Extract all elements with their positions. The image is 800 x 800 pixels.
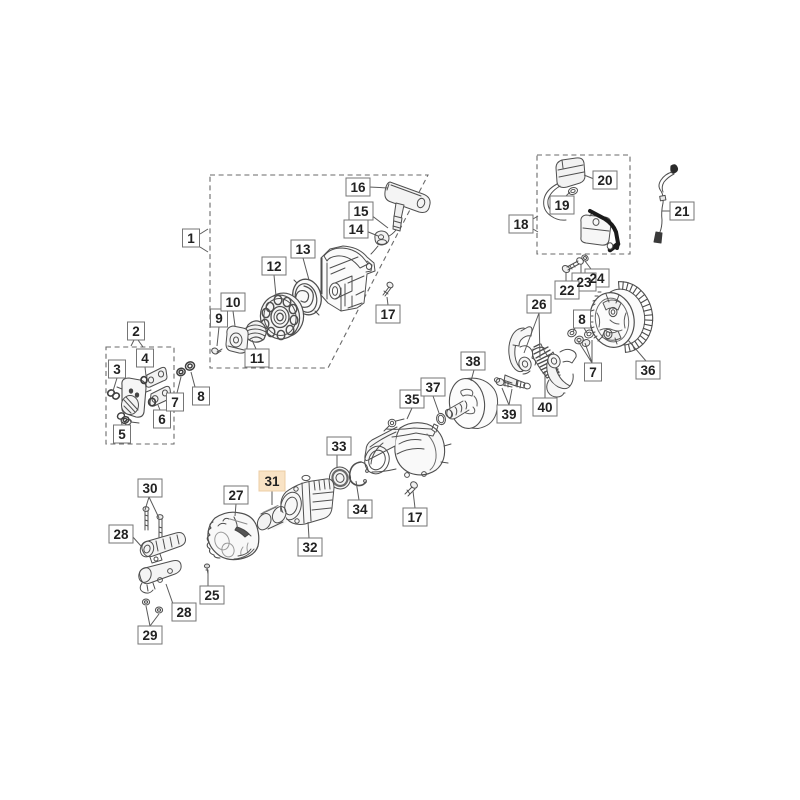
svg-text:18: 18: [513, 217, 529, 232]
svg-text:8: 8: [578, 312, 586, 327]
svg-text:24: 24: [589, 271, 605, 286]
svg-text:20: 20: [597, 173, 612, 188]
svg-text:1: 1: [187, 231, 195, 246]
svg-text:33: 33: [331, 439, 347, 454]
svg-text:28: 28: [176, 605, 192, 620]
svg-text:32: 32: [302, 540, 317, 555]
svg-text:22: 22: [559, 283, 574, 298]
svg-text:26: 26: [531, 297, 547, 312]
svg-text:36: 36: [640, 363, 656, 378]
svg-text:8: 8: [197, 389, 205, 404]
svg-text:10: 10: [225, 295, 240, 310]
svg-text:2: 2: [132, 324, 140, 339]
svg-text:17: 17: [407, 510, 422, 525]
svg-text:29: 29: [142, 628, 157, 643]
svg-text:38: 38: [465, 354, 481, 369]
svg-text:15: 15: [353, 204, 369, 219]
svg-text:28: 28: [113, 527, 129, 542]
svg-text:34: 34: [352, 502, 368, 517]
svg-text:17: 17: [380, 307, 395, 322]
svg-text:40: 40: [537, 400, 552, 415]
svg-text:12: 12: [266, 259, 281, 274]
svg-text:39: 39: [501, 407, 516, 422]
svg-text:14: 14: [348, 222, 364, 237]
svg-text:6: 6: [158, 412, 166, 427]
svg-text:5: 5: [118, 427, 126, 442]
svg-text:7: 7: [589, 365, 597, 380]
svg-text:37: 37: [425, 380, 440, 395]
svg-text:7: 7: [171, 395, 179, 410]
svg-text:3: 3: [113, 362, 121, 377]
svg-text:35: 35: [404, 392, 420, 407]
svg-text:21: 21: [674, 204, 690, 219]
svg-text:11: 11: [250, 351, 265, 366]
svg-text:30: 30: [142, 481, 157, 496]
svg-text:9: 9: [215, 311, 223, 326]
svg-text:13: 13: [295, 242, 311, 257]
svg-text:16: 16: [350, 180, 366, 195]
svg-text:25: 25: [204, 588, 220, 603]
svg-text:27: 27: [228, 488, 243, 503]
svg-text:19: 19: [554, 198, 569, 213]
svg-text:23: 23: [576, 275, 592, 290]
svg-text:4: 4: [141, 351, 149, 366]
svg-text:31: 31: [264, 474, 280, 489]
